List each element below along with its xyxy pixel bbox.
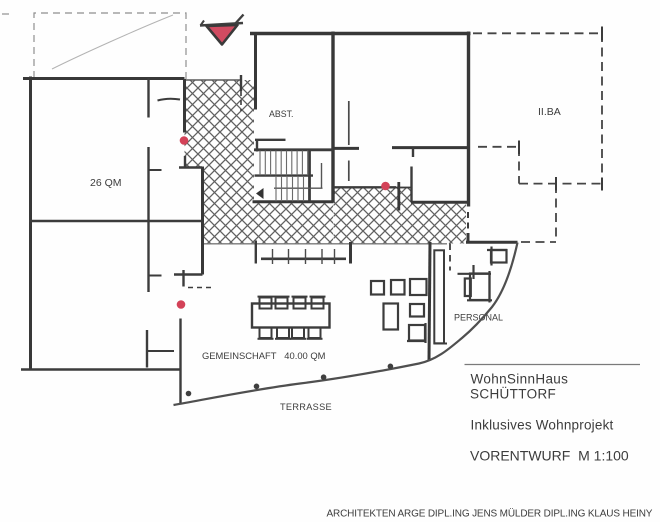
svg-text:ABST.: ABST. [269,109,293,119]
svg-text:Inklusives Wohnprojekt: Inklusives Wohnprojekt [471,418,614,433]
svg-text:ARCHITEKTEN ARGE DIPL.ING JENS: ARCHITEKTEN ARGE DIPL.ING JENS MÜLDER DI… [327,508,653,520]
svg-text:WohnSinnHaus: WohnSinnHaus [471,372,569,387]
svg-text:II.BA: II.BA [538,106,561,118]
svg-text:SCHÜTTORF: SCHÜTTORF [470,387,556,402]
svg-text:26 QM: 26 QM [90,177,122,189]
svg-text:VORENTWURF M 1:100: VORENTWURF M 1:100 [470,448,629,464]
svg-text:TERRASSE: TERRASSE [280,402,332,412]
svg-text:GEMEINSCHAFT 40.00 QM: GEMEINSCHAFT 40.00 QM [202,350,326,361]
